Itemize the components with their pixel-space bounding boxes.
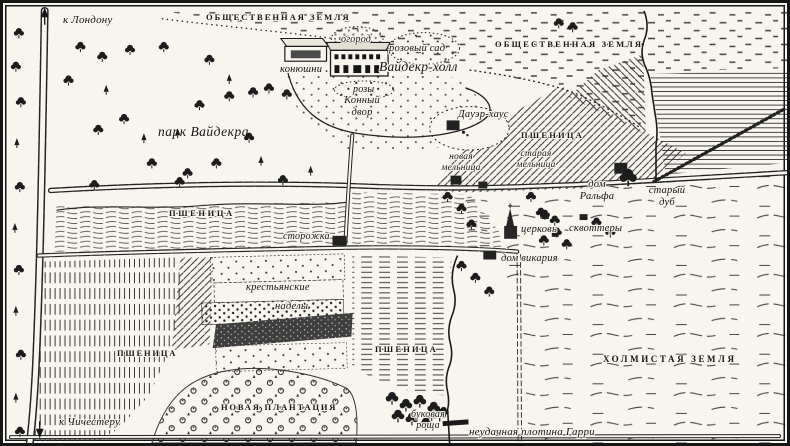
lodge-building xyxy=(332,236,346,246)
old-mill-building xyxy=(478,182,487,189)
dam-bar xyxy=(443,419,469,426)
vicarage-building xyxy=(483,251,496,260)
stables-building xyxy=(281,39,329,62)
estate-map: к Лондону ОБЩЕСТВЕННАЯ ЗЕМЛЯ ОБЩЕСТВЕННА… xyxy=(0,0,790,446)
map-drawing xyxy=(3,3,787,443)
allotments xyxy=(200,254,354,372)
new-mill-building xyxy=(451,176,462,185)
hall-building xyxy=(327,42,391,76)
field-textures xyxy=(33,11,787,443)
